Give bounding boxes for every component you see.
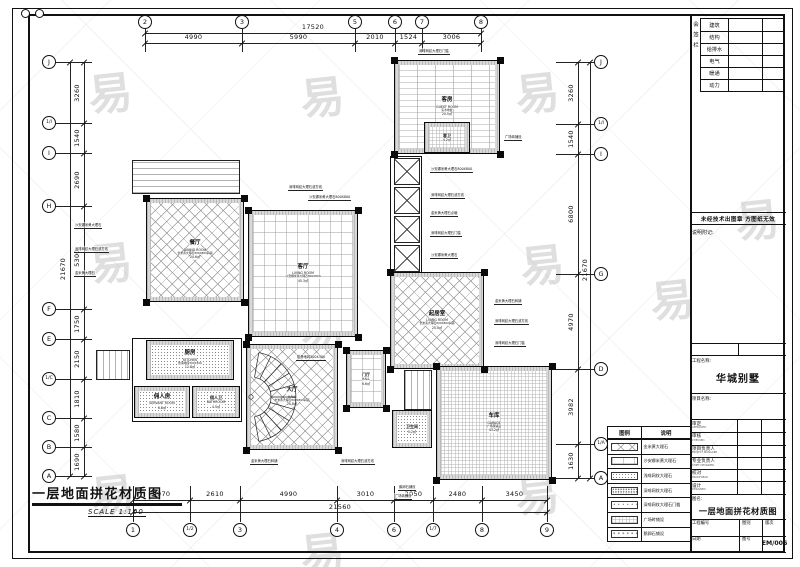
dimension-label: 4990 <box>280 490 298 498</box>
signature-name-cell <box>738 482 762 493</box>
legend-header: 图例 说明 <box>608 427 690 439</box>
title-block-cell: 图别 <box>740 520 763 537</box>
grid-marker: 3 <box>235 15 249 29</box>
room-label: 客卫4.2㎡ <box>425 123 469 152</box>
room-family: 起居室LIVING ROOM金米黄大理石800X800斜铺25.0㎡ <box>390 272 484 369</box>
grid-stub <box>242 29 243 52</box>
material-annotation: 深啡网纹大理石波打线 <box>340 458 375 465</box>
deck-steps <box>96 350 130 380</box>
structural-column <box>241 299 248 306</box>
discipline-sign-cell <box>729 32 763 43</box>
room-label: 门厅HALL6.6㎡ <box>347 351 385 407</box>
drawing-sheet: 易易易易易易易易易易易易 175202356784990599020101524… <box>0 0 800 567</box>
dimension-label: 4970 <box>567 313 575 331</box>
material-annotation: 深啡网纹大理石门槛 <box>494 340 526 347</box>
signature-row: 专业负责人CHIEF DESIGNER <box>690 457 786 469</box>
dimension-label: 3006 <box>443 33 461 41</box>
legend-pattern-cell <box>608 528 642 542</box>
signature-role-cell: 设计DESIGNED <box>690 482 738 493</box>
dimension-label: 3982 <box>567 398 575 416</box>
title-block-cell: 版次 <box>763 520 786 537</box>
grid-stub <box>56 339 92 340</box>
room-label: 车库GARAGE广场砖铺设43.2㎡ <box>437 367 551 479</box>
room-label: 佣人卫BATHROOM4.5㎡ <box>193 387 239 417</box>
grid-marker: A <box>594 471 608 485</box>
signature-role-cell: 项目负责人PROJECT MANAGER <box>690 446 738 457</box>
dimension-label: 4990 <box>185 33 203 41</box>
signature-name-cell <box>738 420 762 432</box>
structural-column <box>481 366 488 373</box>
material-annotation: 沙安娜米黄大理石 <box>74 222 102 229</box>
structural-column <box>391 57 398 64</box>
discipline-date-cell <box>763 19 783 31</box>
legend-row-label: 深啡网纹大理石门槛 <box>642 498 690 512</box>
shaft-opening <box>394 158 420 185</box>
discipline-date-cell <box>763 32 783 43</box>
discipline-label: 动力 <box>701 80 729 91</box>
signature-row: 审定APPROVED <box>690 420 786 432</box>
dimension-label: 2150 <box>73 350 81 368</box>
dimension-label: 1690 <box>73 453 81 471</box>
structural-column <box>391 151 398 158</box>
room-guest-bath: 客卫4.2㎡ <box>424 122 470 153</box>
grid-marker: E <box>42 332 56 346</box>
project-name-label: 工程名称: <box>692 358 711 364</box>
discipline-row: 动力 <box>701 79 783 91</box>
dimension-label: 2690 <box>73 171 81 189</box>
room-entry-hall: 门厅HALL6.6㎡ <box>346 350 386 408</box>
material-annotation: 深啡网纹大理石波打线 <box>494 318 529 325</box>
structural-column <box>383 347 390 354</box>
seal-note: 未经技术出图章 方图纸无效 <box>690 212 786 225</box>
structural-column <box>245 334 252 341</box>
dimension-label: 5990 <box>290 33 308 41</box>
material-annotation: 鹅卵石铺设 <box>398 484 416 491</box>
grid-stub <box>556 444 594 445</box>
discipline-row: 建筑 <box>701 19 783 31</box>
material-annotation: 深啡网纹大理石门槛 <box>430 230 462 237</box>
plan-title-underline <box>32 503 182 506</box>
room-label: 佣人房SERVANT ROOM6.8㎡ <box>135 387 189 417</box>
grid-marker: 1/A <box>594 437 608 451</box>
dimension-label: 1630 <box>567 452 575 470</box>
dimension-label: 2610 <box>206 490 224 498</box>
grid-marker: C <box>42 411 56 425</box>
room-toilet: 卫生间5.2㎡ <box>392 410 432 448</box>
drawing-name-label: 图名: <box>692 496 702 502</box>
dimension-label: 2480 <box>449 490 467 498</box>
structural-column <box>243 341 250 348</box>
structural-column <box>343 347 350 354</box>
signature-row: 审核CHECKED <box>690 432 786 444</box>
dimension-label: 3010 <box>357 490 375 498</box>
material-annotation: 广场砖铺设 <box>504 134 522 141</box>
legend-row: 广场砖铺设 <box>608 512 690 527</box>
material-annotation: 金米黄大理石点缀 <box>430 210 458 217</box>
discipline-label: 电气 <box>701 56 729 67</box>
subproject-label: 项目名称: <box>692 396 711 402</box>
grid-stub <box>56 309 92 310</box>
grid-stub <box>482 486 483 522</box>
structural-column <box>355 334 362 341</box>
grid-marker: 6 <box>388 15 402 29</box>
grid-stub <box>56 123 92 124</box>
grid-marker: A <box>42 469 56 483</box>
discipline-table: 建筑结构给排水电气暖通动力 <box>700 18 784 92</box>
plan-title: 一层地面拼花材质图 SCALE 1:100 <box>32 483 182 517</box>
structural-column <box>245 207 252 214</box>
grid-stub <box>56 379 92 380</box>
grid-stub <box>394 486 395 522</box>
dimension-label: 3260 <box>567 84 575 102</box>
structural-column <box>549 363 556 370</box>
dimension-label: 1750 <box>73 315 81 333</box>
structural-column <box>387 269 394 276</box>
plan-title-scale: SCALE 1:100 <box>88 508 146 517</box>
dimension-label: 1524 <box>400 33 418 41</box>
structural-column <box>497 151 504 158</box>
grid-marker: 7 <box>415 15 429 29</box>
title-block-small-row <box>690 343 786 356</box>
grid-marker: 1/C <box>42 372 56 386</box>
remark-label: 说明附记: <box>692 229 714 236</box>
project-name: 华城别墅 <box>690 370 786 385</box>
dimension-label: 6800 <box>567 205 575 223</box>
material-annotation: 深啡网纹大理石波打线 <box>74 246 109 253</box>
legend-pattern-chip <box>611 501 638 509</box>
dimension-label: 21670 <box>581 259 589 281</box>
legend-row: 鹅卵石铺设 <box>608 527 690 542</box>
drawing-number: EM/006 <box>763 537 786 554</box>
structural-column <box>549 477 556 484</box>
deck-steps <box>404 370 432 410</box>
signature-row: 设计DESIGNED <box>690 481 786 493</box>
grid-stub <box>355 29 356 52</box>
grid-marker: J <box>594 55 608 69</box>
grid-stub <box>56 476 92 477</box>
grid-marker: 5 <box>348 15 362 29</box>
signature-date-cell <box>762 446 786 457</box>
signature-date-cell <box>762 433 786 444</box>
legend-row-label: 浅啡网纹大理石 <box>642 469 690 483</box>
structural-column <box>433 363 440 370</box>
dimension-label: 21670 <box>59 258 67 280</box>
legend-row: 浅啡网纹大理石 <box>608 468 690 483</box>
discipline-sign-cell <box>729 80 763 91</box>
material-annotation: 深啡网纹大理石波打线 <box>430 192 465 199</box>
dimension-line <box>145 43 481 44</box>
plan-title-text: 一层地面拼花材质图 <box>32 483 182 502</box>
grid-marker: H <box>42 199 56 213</box>
legend-pattern-cell <box>608 440 642 454</box>
material-annotation: 金米黄大理石斜铺 <box>494 298 522 305</box>
signature-date-cell <box>762 470 786 481</box>
signature-role-cell: 校对PROOFREAD <box>690 470 738 481</box>
legend-row-label: 广场砖铺设 <box>642 513 690 527</box>
dimension-label: 3260 <box>73 84 81 102</box>
grid-stub <box>56 418 92 419</box>
grid-marker: 9 <box>540 523 554 537</box>
deck-steps <box>132 160 240 194</box>
signature-date-cell <box>762 420 786 432</box>
title-block-cell: 图号 <box>740 537 763 554</box>
discipline-row: 给排水 <box>701 43 783 55</box>
grid-marker: 8 <box>475 523 489 537</box>
legend-row-label: 深啡网纹大理石 <box>642 484 690 498</box>
signature-name-cell <box>738 458 762 469</box>
legend-pattern-chip <box>611 472 638 480</box>
room-label: 起居室LIVING ROOM金米黄大理石800X800斜铺25.0㎡ <box>391 273 483 368</box>
legend-row: 沙安娜米黄大理石 <box>608 454 690 469</box>
drawing-name-block: 图名: 一层地面拼花材质图 <box>690 494 786 520</box>
material-annotation: 防滑地砖300X300 <box>296 354 326 361</box>
dimension-line <box>133 512 547 513</box>
dimension-label: 1580 <box>73 424 81 442</box>
shaft-opening <box>394 216 420 243</box>
structural-column <box>243 447 250 454</box>
grid-stub <box>190 486 191 522</box>
legend-row: 金米黄大理石 <box>608 439 690 454</box>
room-label: 客厅LIVING ROOM沙安娜米黄大理石800X80045.3㎡ <box>249 211 357 336</box>
material-annotation: 沙安娜米黄大理石800X800 <box>430 166 473 173</box>
grid-marker: G <box>594 267 608 281</box>
room-kitchen: 厨房KITCHEN防滑地砖300X30012.8㎡ <box>146 340 234 380</box>
legend-pattern-cell <box>608 513 642 527</box>
grid-marker: I <box>42 146 56 160</box>
grid-stub <box>547 486 548 522</box>
material-annotation: 深啡网纹大理石门槛 <box>418 48 450 55</box>
dimension-line <box>133 500 547 501</box>
legend-table: 图例 说明 金米黄大理石沙安娜米黄大理石浅啡网纹大理石深啡网纹大理石深啡网纹大理… <box>607 426 691 542</box>
dimension-line <box>70 62 71 476</box>
legend-pattern-chip <box>611 487 638 495</box>
drawing-name: 一层地面拼花材质图 <box>690 505 786 517</box>
signature-name-cell <box>738 433 762 444</box>
signature-table: 审定APPROVED审核CHECKED项目负责人PROJECT MANAGER专… <box>690 420 786 495</box>
shaft-opening <box>394 187 420 214</box>
grid-marker: I <box>594 147 608 161</box>
legend-row: 深啡网纹大理石门槛 <box>608 497 690 512</box>
project-name-block: 工程名称: 华城别墅 <box>690 356 786 394</box>
grid-stub <box>433 486 434 522</box>
signature-date-cell <box>762 482 786 493</box>
title-block-cell: 工程编号 <box>690 520 740 537</box>
dimension-label: 3450 <box>506 490 524 498</box>
legend-pattern-cell <box>608 469 642 483</box>
subproject-block: 项目名称: <box>690 394 786 420</box>
material-annotation: 深啡网纹大理石波打线 <box>288 184 323 191</box>
legend-pattern-chip <box>611 530 638 538</box>
discipline-sign-cell <box>729 19 763 31</box>
legend-pattern-cell <box>608 484 642 498</box>
signature-row: 项目负责人PROJECT MANAGER <box>690 445 786 457</box>
legend-header-label: 说明 <box>642 427 690 438</box>
grid-stub <box>556 124 594 125</box>
signature-role-cell: 专业负责人CHIEF DESIGNER <box>690 458 738 469</box>
legend-pattern-chip <box>611 516 638 524</box>
registration-mark <box>35 9 44 18</box>
discipline-row: 结构 <box>701 31 783 43</box>
grid-stub <box>395 29 396 52</box>
structural-column <box>387 366 394 373</box>
material-annotation: 广场砖铺设 <box>394 493 412 500</box>
structural-column <box>241 195 248 202</box>
dimension-label: 1810 <box>73 390 81 408</box>
grid-marker: 3 <box>233 523 247 537</box>
discipline-row: 暖通 <box>701 67 783 79</box>
signature-role-cell: 审核CHECKED <box>690 433 738 444</box>
dimension-label: 2010 <box>366 33 384 41</box>
structural-column <box>335 341 342 348</box>
discipline-date-cell <box>763 56 783 67</box>
discipline-sign-cell <box>729 68 763 79</box>
dimension-label: 1540 <box>567 130 575 148</box>
legend-header-pattern: 图例 <box>608 427 642 438</box>
structural-column <box>433 477 440 484</box>
material-annotation: 金米黄大理石斜铺 <box>250 458 278 465</box>
discipline-label: 给排水 <box>701 44 729 55</box>
grid-marker: 8 <box>474 15 488 29</box>
signature-name-cell <box>738 470 762 481</box>
discipline-sign-cell <box>729 44 763 55</box>
grid-stub <box>56 206 92 207</box>
structural-column <box>343 405 350 412</box>
structural-column <box>481 269 488 276</box>
grid-marker: D <box>594 362 608 376</box>
structural-column <box>143 195 150 202</box>
grid-marker: 6 <box>387 523 401 537</box>
material-annotation: 沙安娜米黄大理石800X800 <box>308 194 351 201</box>
legend-row-label: 金米黄大理石 <box>642 440 690 454</box>
dimension-label: 17520 <box>302 23 324 31</box>
room-label: 厨房KITCHEN防滑地砖300X30012.8㎡ <box>147 341 233 379</box>
grid-marker: 1/I <box>42 116 56 130</box>
title-block-cell: 日期 <box>690 537 740 554</box>
structural-column <box>143 299 150 306</box>
dimension-label: 1540 <box>73 129 81 147</box>
legend-pattern-chip <box>611 457 638 465</box>
shaft-opening <box>394 245 420 272</box>
grid-stub <box>56 153 92 154</box>
room-servant: 佣人房SERVANT ROOM6.8㎡ <box>134 386 190 418</box>
discipline-label: 暖通 <box>701 68 729 79</box>
grid-marker: 1/2 <box>183 523 197 537</box>
legend-row: 深啡网纹大理石 <box>608 483 690 498</box>
material-annotation: 沙安娜米黄大理石 <box>430 252 458 259</box>
grid-marker: 1 <box>126 523 140 537</box>
grid-stub <box>556 369 594 370</box>
discipline-row: 电气 <box>701 55 783 67</box>
discipline-date-cell <box>763 44 783 55</box>
legend-row-label: 沙安娜米黄大理石 <box>642 455 690 469</box>
legend-pattern-chip <box>611 443 638 451</box>
structural-column <box>335 447 342 454</box>
signature-row: 校对PROOFREAD <box>690 469 786 481</box>
grid-marker: 2 <box>138 15 152 29</box>
grid-marker: F <box>42 302 56 316</box>
room-dining: 餐厅DINING ROOM金米黄大理石800X800斜铺24.6㎡ <box>146 198 244 302</box>
room-label: 餐厅DINING ROOM金米黄大理石800X800斜铺24.6㎡ <box>147 199 243 301</box>
signature-date-cell <box>762 458 786 469</box>
dimension-label: 21560 <box>329 503 351 511</box>
spiral-staircase <box>247 347 299 451</box>
discipline-label: 建筑 <box>701 19 729 31</box>
discipline-label: 结构 <box>701 32 729 43</box>
structural-column <box>497 57 504 64</box>
title-block-bottom-table: 工程编号图别版次日期图号EM/006 <box>690 520 786 553</box>
grid-stub <box>56 62 92 63</box>
discipline-sign-cell <box>729 56 763 67</box>
structural-column <box>355 207 362 214</box>
room-servant-bath: 佣人卫BATHROOM4.5㎡ <box>192 386 240 418</box>
signature-name-cell <box>738 446 762 457</box>
legend-pattern-cell <box>608 455 642 469</box>
grid-marker: 1/I <box>594 117 608 131</box>
room-living: 客厅LIVING ROOM沙安娜米黄大理石800X80045.3㎡ <box>248 210 358 337</box>
grid-marker: 1/7 <box>426 523 440 537</box>
dimension-line <box>590 62 591 478</box>
grid-stub <box>556 154 594 155</box>
room-label: 卫生间5.2㎡ <box>393 411 431 447</box>
discipline-date-cell <box>763 80 783 91</box>
registration-mark <box>21 9 30 18</box>
grid-stub <box>56 447 92 448</box>
grid-stub <box>240 486 241 522</box>
signature-strip-label: 会签栏 <box>691 21 699 53</box>
grid-marker: B <box>42 440 56 454</box>
legend-pattern-cell <box>608 498 642 512</box>
discipline-date-cell <box>763 68 783 79</box>
grid-marker: J <box>42 55 56 69</box>
signature-role-cell: 审定APPROVED <box>690 420 738 432</box>
material-annotation: 金米黄大理石 <box>74 270 96 277</box>
structural-column <box>383 405 390 412</box>
legend-row-label: 鹅卵石铺设 <box>642 528 690 542</box>
room-garage: 车库GARAGE广场砖铺设43.2㎡ <box>436 366 552 480</box>
grid-marker: 4 <box>330 523 344 537</box>
